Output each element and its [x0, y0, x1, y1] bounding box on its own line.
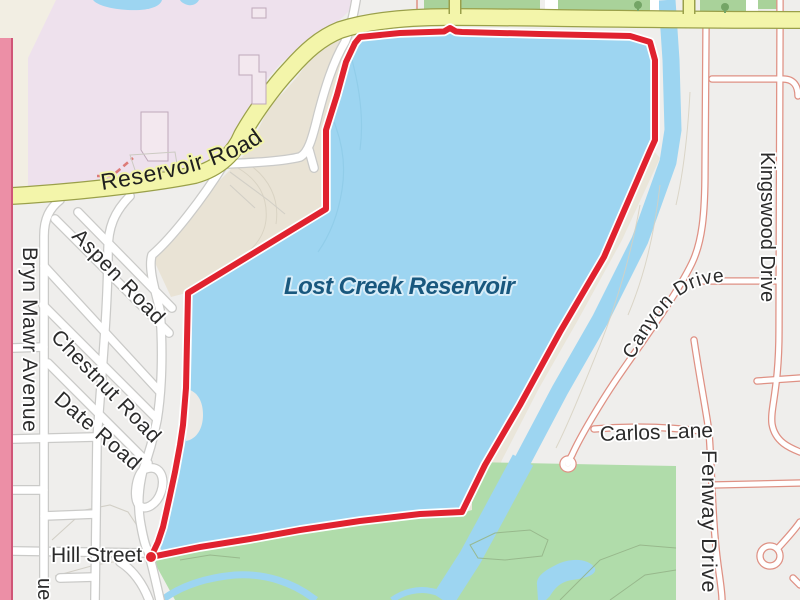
svg-text:Fenway Drive: Fenway Drive: [697, 450, 721, 593]
svg-text:Kingswood Drive: Kingswood Drive: [756, 152, 778, 302]
svg-text:Bryn Mawr Avenue: Bryn Mawr Avenue: [18, 247, 41, 432]
svg-text:Carlos Lane: Carlos Lane: [599, 419, 713, 446]
svg-text:Lost Creek Reservoir: Lost Creek Reservoir: [284, 273, 517, 300]
svg-text:Hill Street: Hill Street: [51, 544, 142, 567]
svg-text:ue: ue: [33, 578, 55, 600]
